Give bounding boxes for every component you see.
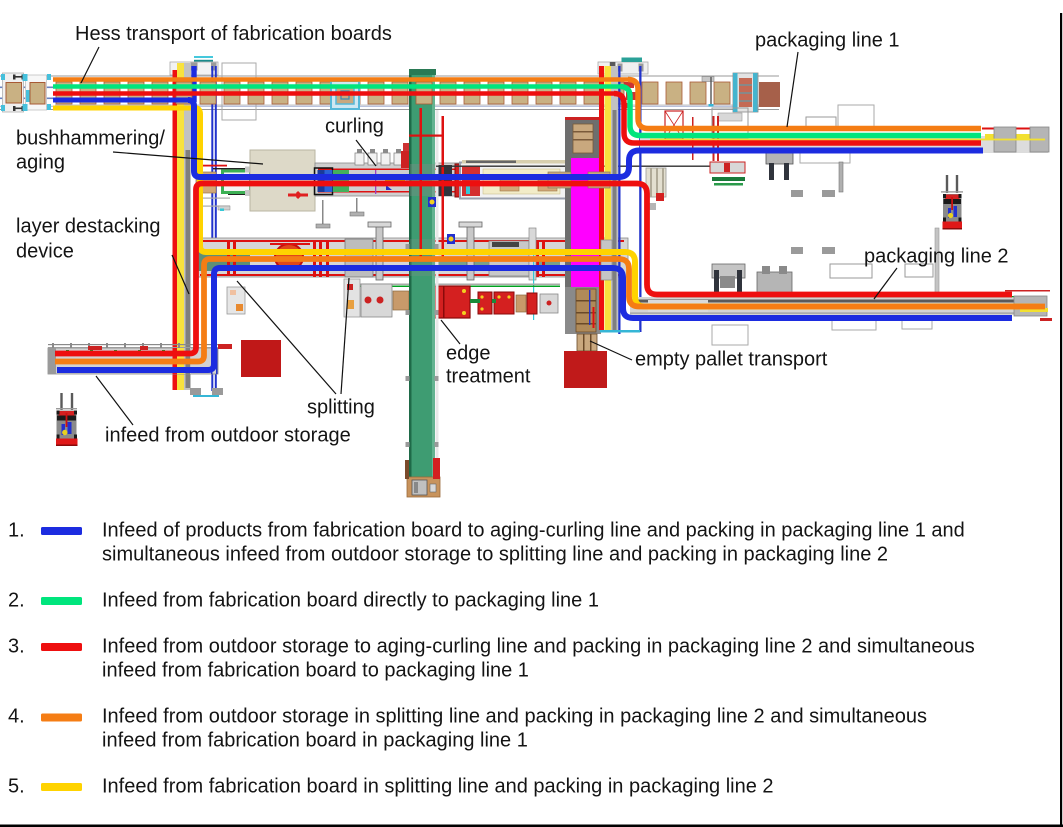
svg-text:infeed from fabrication board: infeed from fabrication board in packagi… bbox=[102, 730, 528, 752]
svg-text:edge: edge bbox=[446, 343, 491, 365]
svg-text:Hess transport of fabrication: Hess transport of fabrication boards bbox=[75, 23, 392, 45]
svg-text:layer destacking: layer destacking bbox=[16, 216, 161, 238]
svg-text:empty pallet transport: empty pallet transport bbox=[635, 349, 828, 371]
svg-text:packaging line 1: packaging line 1 bbox=[755, 30, 900, 52]
svg-text:curling: curling bbox=[325, 116, 384, 138]
svg-text:simultaneous infeed from outdo: simultaneous infeed from outdoor storage… bbox=[102, 544, 888, 566]
svg-text:infeed from outdoor storage: infeed from outdoor storage bbox=[105, 425, 351, 447]
svg-text:device: device bbox=[16, 241, 74, 263]
svg-text:Infeed of products from fabric: Infeed of products from fabrication boar… bbox=[102, 520, 965, 542]
svg-text:5.: 5. bbox=[8, 776, 25, 798]
svg-text:4.: 4. bbox=[8, 706, 25, 728]
svg-text:Infeed from outdoor storage in: Infeed from outdoor storage in splitting… bbox=[102, 706, 927, 728]
svg-text:3.: 3. bbox=[8, 636, 25, 658]
svg-text:treatment: treatment bbox=[446, 366, 531, 388]
svg-text:1.: 1. bbox=[8, 520, 25, 542]
svg-text:splitting: splitting bbox=[307, 397, 375, 419]
svg-text:aging: aging bbox=[16, 152, 65, 174]
svg-text:bushhammering/: bushhammering/ bbox=[16, 128, 165, 150]
svg-text:infeed from fabrication board: infeed from fabrication board to packagi… bbox=[102, 660, 529, 682]
svg-text:Infeed from outdoor storage to: Infeed from outdoor storage to aging-cur… bbox=[102, 636, 975, 658]
svg-text:2.: 2. bbox=[8, 590, 25, 612]
svg-text:Infeed from fabrication board: Infeed from fabrication board directly t… bbox=[102, 590, 599, 612]
svg-text:packaging line 2: packaging line 2 bbox=[864, 246, 1009, 268]
svg-text:Infeed from fabrication board: Infeed from fabrication board in splitti… bbox=[102, 776, 774, 798]
